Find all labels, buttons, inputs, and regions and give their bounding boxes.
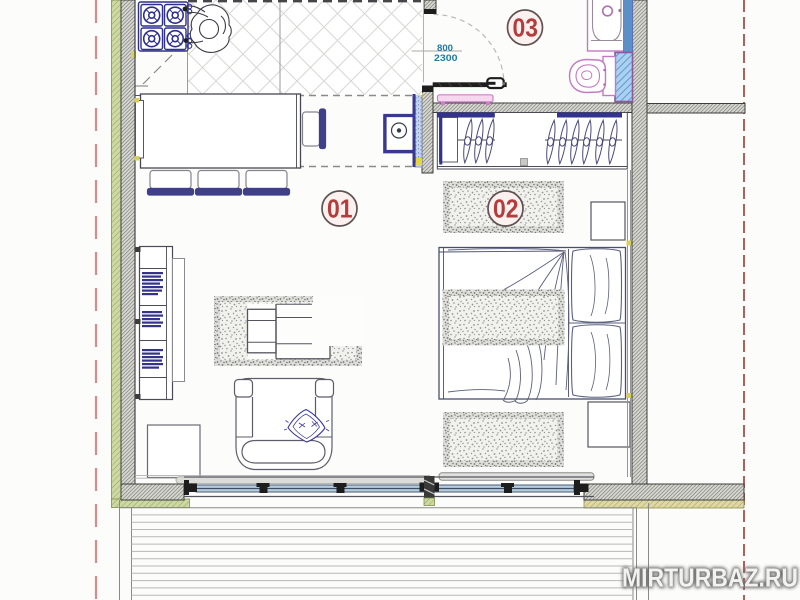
svg-text:01: 01 (327, 194, 353, 224)
svg-text:02: 02 (493, 194, 519, 224)
svg-text:2300: 2300 (434, 53, 458, 64)
svg-text:MIRTURBAZ.RU: MIRTURBAZ.RU (622, 563, 798, 593)
svg-text:03: 03 (513, 13, 539, 43)
